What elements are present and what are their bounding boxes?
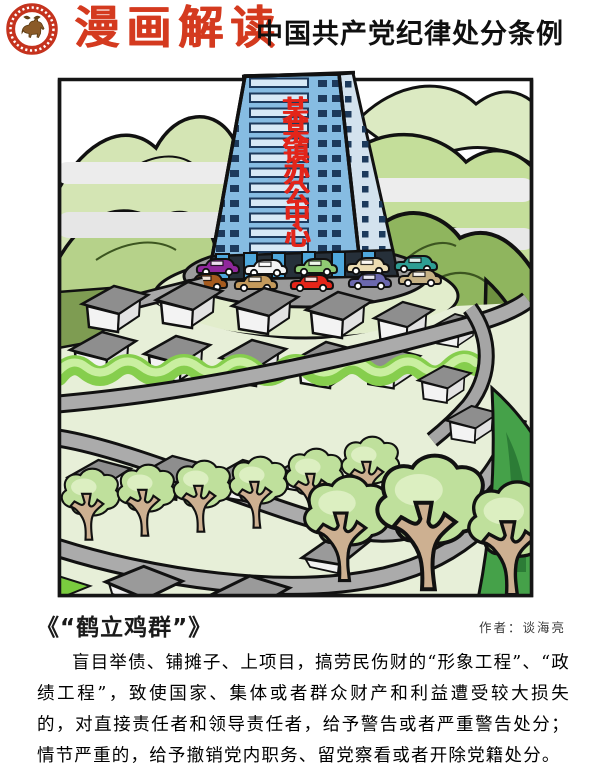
regulation-paragraph: 盲目举债、铺摊子、上项目，搞劳民伤财的“形象工程”、“政绩工程”，致使国家、集体… bbox=[37, 648, 570, 773]
page: { "header": { "logo_icon": "bull-seal-ic… bbox=[0, 0, 600, 759]
bull-seal-icon bbox=[6, 3, 58, 55]
page-header: 漫画解读 中国共产党纪律处分条例 bbox=[0, 0, 600, 62]
cartoon-author: 作者：谈海亮 bbox=[479, 617, 566, 636]
building-sign-text: 某某镇办公中心 bbox=[270, 88, 315, 251]
caption-row: 《“鹤立鸡群”》 作者：谈海亮 bbox=[36, 608, 570, 638]
cartoon-caption: 《“鹤立鸡群”》 bbox=[36, 608, 212, 642]
page-title-red: 漫画解读 bbox=[74, 0, 282, 56]
page-title-black: 中国共产党纪律处分条例 bbox=[256, 16, 564, 54]
